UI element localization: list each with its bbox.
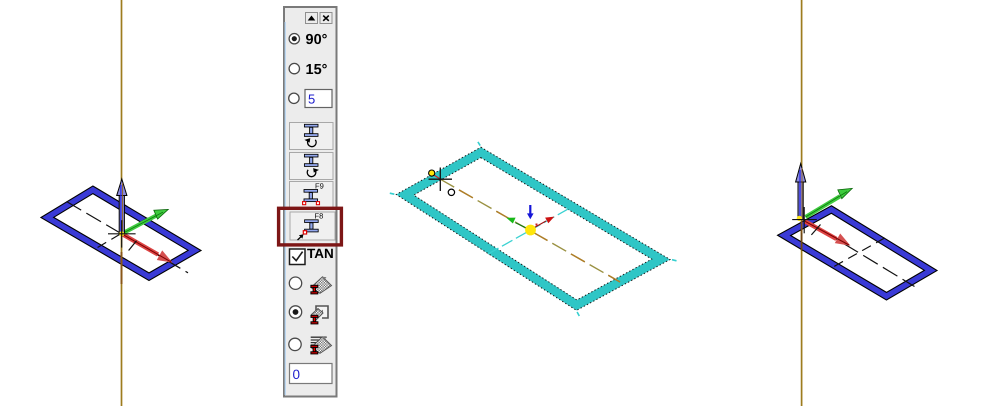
svg-text:F8: F8 <box>315 212 324 221</box>
svg-text:0: 0 <box>293 367 301 382</box>
svg-text:5: 5 <box>308 92 315 107</box>
svg-text:15°: 15° <box>306 62 328 78</box>
svg-text:90°: 90° <box>306 32 328 48</box>
svg-text:TAN: TAN <box>307 246 334 261</box>
